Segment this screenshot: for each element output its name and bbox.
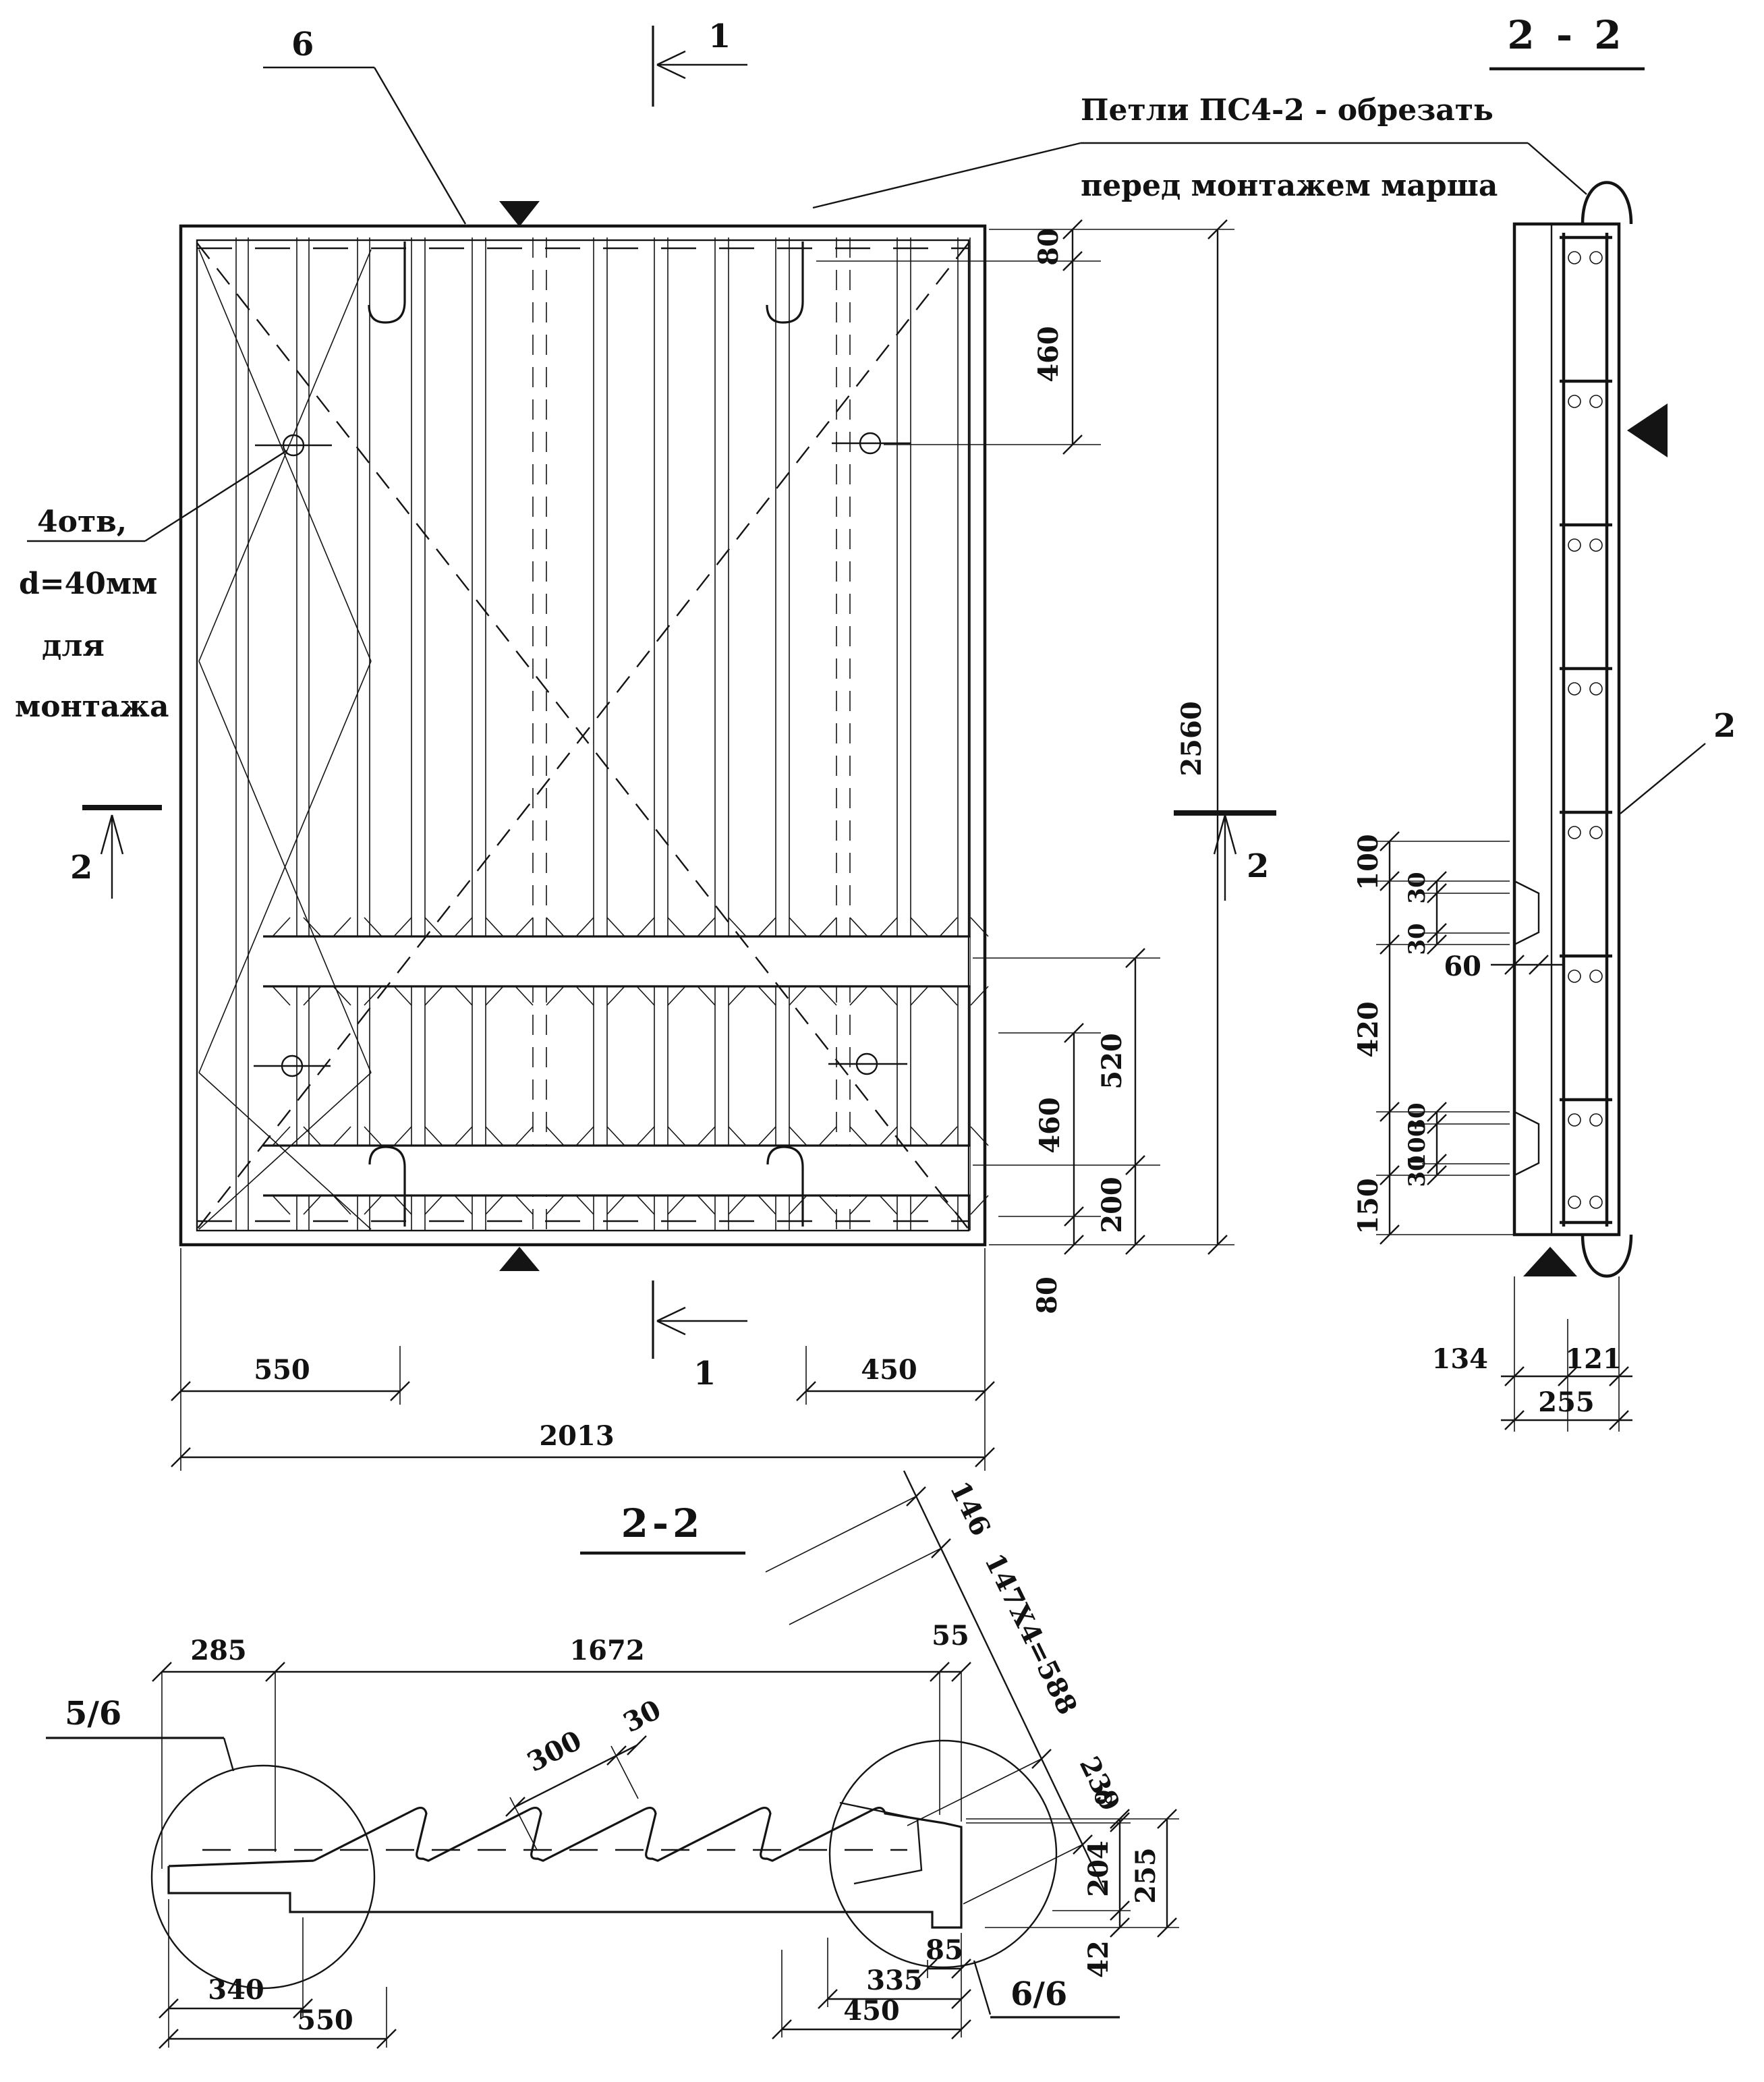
svg-text:6/6: 6/6 (1011, 1975, 1067, 2013)
dim-239: 239 (1073, 1751, 1127, 1816)
detail-circle-right (830, 1741, 1056, 1967)
svg-text:для: для (42, 629, 105, 663)
dim-450: 450 (861, 1354, 917, 1386)
dim-30: 30 (1404, 923, 1431, 955)
lifting-loop-icon (1583, 1235, 1631, 1276)
section-marker-2-right: 2 (1174, 813, 1276, 901)
section-marker-1-bottom: 1 (653, 1281, 747, 1392)
dim-550: 550 (297, 2004, 353, 2036)
level-mark-icon (499, 1247, 540, 1271)
side-dimensions: 100 30 30 420 30 100 30 150 60 134 121 2… (1353, 834, 1622, 1418)
stair-end-notch (840, 1803, 921, 1884)
dim-200: 200 (1096, 1177, 1128, 1233)
plan-diagonal (197, 243, 969, 1229)
dim-285: 285 (190, 1635, 247, 1666)
side-view-title: 2 - 2 (1507, 12, 1625, 58)
dim-550: 550 (254, 1354, 310, 1386)
lifting-loop-icon (1583, 183, 1631, 225)
loops-callout: Петли ПС4-2 - обрезать перед монтажем ма… (813, 93, 1587, 208)
svg-text:4отв,: 4отв, (37, 505, 127, 539)
stair-steps (314, 1808, 909, 1861)
dim-9: 9 (1091, 1789, 1118, 1805)
dim-80-top: 80 (1033, 228, 1064, 266)
dim-150: 150 (1353, 1178, 1384, 1235)
dim-30: 30 (1404, 1155, 1431, 1187)
plan-view: 1 1 2 2 6 (15, 18, 1587, 1452)
svg-text:Петли ПС4-2 - обрезать: Петли ПС4-2 - обрезать (1081, 93, 1493, 128)
section-title: 2-2 (621, 1500, 704, 1546)
plan-rebar-lines (236, 237, 970, 1231)
side-notch (1514, 1112, 1539, 1175)
plan-dimensions: 80 460 2560 460 80 520 200 550 450 2013 (254, 228, 1207, 1452)
dim-2560: 2560 (1176, 701, 1207, 776)
svg-text:5/6: 5/6 (65, 1695, 121, 1733)
detail-label-left: 5/6 (46, 1695, 233, 1771)
section-label: 1 (708, 18, 731, 55)
dim-335: 335 (866, 1965, 923, 1996)
level-mark-icon (499, 201, 540, 227)
section-marker-2-left: 2 (70, 808, 162, 899)
dim-255: 255 (1538, 1386, 1595, 1418)
position-6-callout: 6 (263, 26, 465, 224)
dim-30: 30 (1404, 872, 1431, 903)
dim-520: 520 (1096, 1033, 1128, 1090)
dim-146: 146 (944, 1476, 997, 1541)
dim-255: 255 (1130, 1847, 1162, 1904)
dim-420: 420 (1353, 1001, 1384, 1058)
position-label: 6 (291, 26, 314, 63)
side-view: 2 - 2 2 100 30 30 420 30 100 30 150 60 1… (1353, 12, 1736, 1418)
dim-147x4: 147X4=588 (978, 1548, 1083, 1720)
stair-slab-outline (169, 1818, 961, 1928)
dim-55: 55 (932, 1620, 969, 1652)
dim-2013: 2013 (539, 1420, 614, 1452)
plan-lattice (199, 250, 371, 1229)
holes-callout: 4отв, d=40мм для монтажа (15, 451, 287, 724)
section-marker-1-top: 1 (653, 18, 747, 107)
side-panel-outline (1514, 224, 1619, 1235)
dim-460-bottom: 460 (1034, 1097, 1066, 1154)
svg-text:d=40мм: d=40мм (19, 567, 157, 601)
lifting-hook-icon (369, 242, 803, 1227)
svg-text:монтажа: монтажа (15, 690, 169, 724)
position-label: 2 (1713, 707, 1736, 745)
dim-460-top: 460 (1033, 326, 1064, 383)
side-notch (1514, 881, 1539, 945)
dim-80-bottom: 80 (1031, 1276, 1063, 1314)
rebar-position-2-leader: 2 (1620, 707, 1736, 814)
dim-60: 60 (1444, 951, 1481, 982)
drawing-canvas: 1 1 2 2 6 (0, 0, 1764, 2082)
level-mark-icon (1627, 403, 1668, 457)
dim-340: 340 (208, 1974, 264, 2006)
section-label: 1 (693, 1355, 716, 1392)
engineering-drawing: 1 1 2 2 6 (0, 0, 1764, 2082)
stair-section-view: 2-2 5/6 6/6 285 1672 55 146 147X4=588 23 (46, 1476, 1162, 2036)
detail-circle-left (152, 1766, 374, 1988)
dim-42: 42 (1083, 1940, 1114, 1978)
section-label: 2 (70, 849, 92, 887)
dim-204: 204 (1083, 1840, 1114, 1897)
level-mark-icon (1523, 1247, 1577, 1276)
side-rebar-cage (1560, 233, 1612, 1227)
svg-text:перед монтажем марша: перед монтажем марша (1081, 169, 1498, 203)
dim-85: 85 (926, 1934, 963, 1966)
dim-300: 300 (522, 1724, 587, 1778)
stair-soffit (169, 1861, 314, 1866)
section-label: 2 (1247, 847, 1269, 885)
dim-30: 30 (618, 1693, 666, 1739)
dim-1672: 1672 (569, 1635, 644, 1666)
dim-134: 134 (1432, 1343, 1489, 1375)
dim-100: 100 (1353, 834, 1384, 891)
section-dimensions: 285 1672 55 146 147X4=588 239 300 30 9 2… (190, 1476, 1162, 2036)
